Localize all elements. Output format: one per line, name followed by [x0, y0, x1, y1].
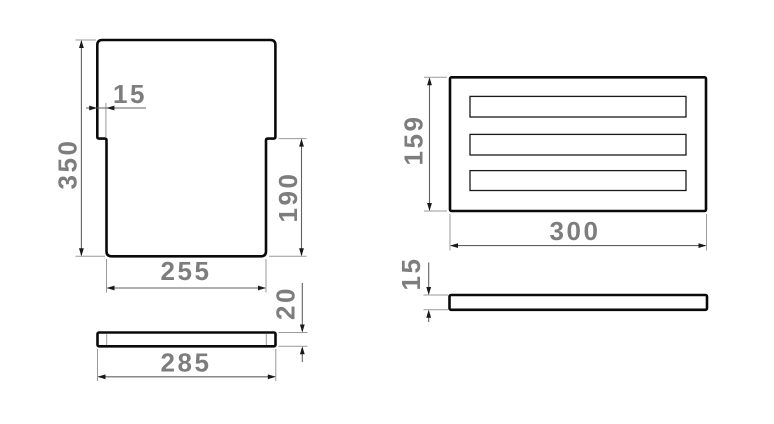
svg-text:300: 300 — [550, 216, 601, 246]
svg-text:15: 15 — [396, 257, 426, 291]
svg-text:255: 255 — [161, 256, 212, 286]
svg-text:20: 20 — [271, 286, 301, 320]
svg-text:285: 285 — [161, 348, 212, 378]
svg-text:350: 350 — [53, 139, 83, 190]
svg-text:15: 15 — [113, 79, 147, 109]
svg-text:190: 190 — [273, 172, 303, 223]
svg-text:159: 159 — [399, 115, 429, 166]
